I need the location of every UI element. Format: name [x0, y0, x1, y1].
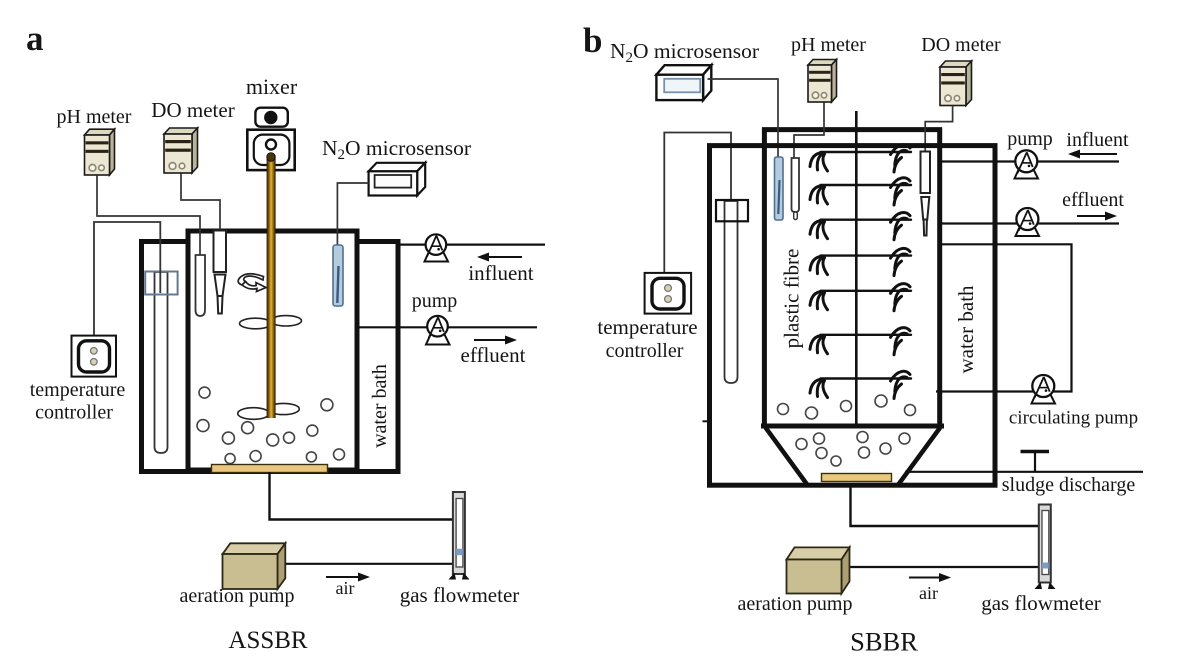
svg-text:temperature: temperature: [597, 315, 697, 339]
svg-text:pump: pump: [412, 290, 458, 312]
svg-text:air: air: [919, 583, 938, 603]
svg-text:pump: pump: [1007, 128, 1053, 150]
svg-text:water bath: water bath: [954, 285, 978, 374]
svg-text:N2O microsensor: N2O microsensor: [610, 39, 759, 66]
svg-text:plastic fibre: plastic fibre: [780, 249, 804, 349]
svg-text:pH meter: pH meter: [791, 34, 866, 56]
svg-text:aeration pump: aeration pump: [738, 593, 853, 615]
svg-text:controller: controller: [606, 340, 684, 362]
svg-text:water bath: water bath: [369, 364, 391, 448]
svg-text:N2O microsensor: N2O microsensor: [322, 136, 471, 163]
svg-text:a: a: [26, 19, 44, 58]
svg-text:effluent: effluent: [1062, 189, 1124, 211]
svg-text:temperature: temperature: [30, 379, 126, 401]
svg-text:gas flowmeter: gas flowmeter: [981, 591, 1101, 615]
svg-text:b: b: [583, 21, 602, 60]
svg-text:influent: influent: [468, 261, 533, 285]
svg-text:DO meter: DO meter: [151, 98, 234, 122]
svg-text:ASSBR: ASSBR: [228, 627, 308, 654]
svg-text:sludge discharge: sludge discharge: [1002, 474, 1136, 496]
svg-text:DO meter: DO meter: [921, 34, 1001, 56]
svg-text:aeration pump: aeration pump: [180, 585, 295, 607]
svg-text:SBBR: SBBR: [850, 627, 918, 657]
svg-text:influent: influent: [1066, 129, 1129, 151]
svg-text:mixer: mixer: [246, 74, 298, 99]
svg-text:circulating pump: circulating pump: [1009, 408, 1138, 429]
svg-text:controller: controller: [35, 402, 113, 424]
svg-text:air: air: [336, 578, 355, 598]
svg-text:pH meter: pH meter: [57, 106, 132, 128]
svg-text:effluent: effluent: [461, 343, 526, 367]
svg-text:gas flowmeter: gas flowmeter: [400, 583, 520, 607]
